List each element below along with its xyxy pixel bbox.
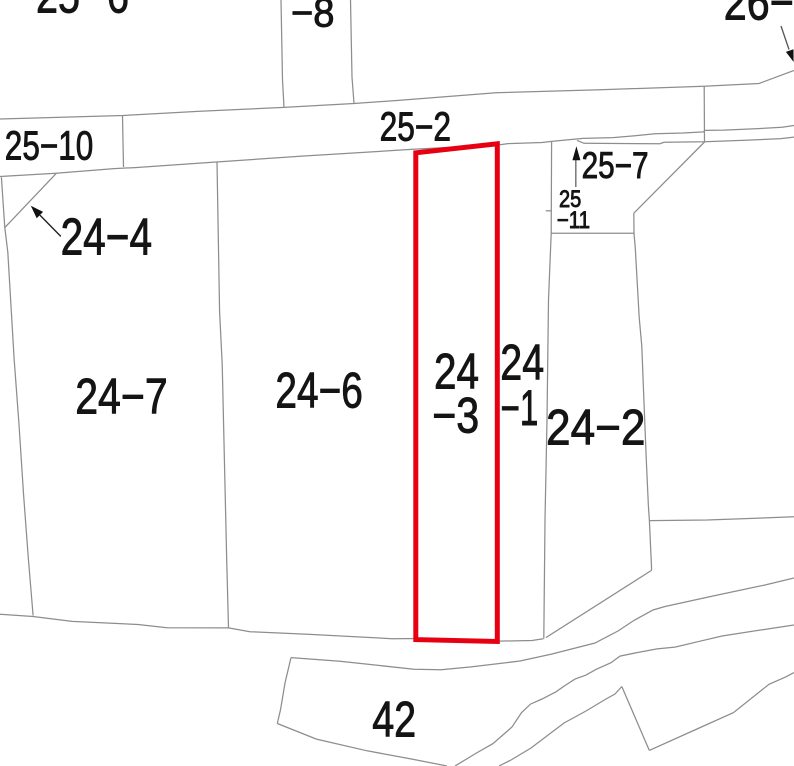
svg-text:−8: −8 <box>291 0 335 36</box>
svg-text:24−7: 24−7 <box>75 369 168 425</box>
svg-text:6: 6 <box>107 0 129 24</box>
svg-text:−11: −11 <box>557 207 590 234</box>
svg-text:25−7: 25−7 <box>582 145 649 186</box>
svg-text:24−2: 24−2 <box>546 399 646 455</box>
svg-text:42: 42 <box>372 692 416 748</box>
svg-text:25−10: 25−10 <box>5 123 94 169</box>
svg-text:−3: −3 <box>432 388 479 444</box>
svg-text:26−: 26− <box>724 0 794 31</box>
svg-text:24−6: 24−6 <box>275 363 363 419</box>
svg-text:−1: −1 <box>501 380 539 436</box>
svg-text:25−2: 25−2 <box>380 104 452 150</box>
svg-text:24−4: 24−4 <box>61 209 153 267</box>
svg-text:25: 25 <box>36 0 80 24</box>
